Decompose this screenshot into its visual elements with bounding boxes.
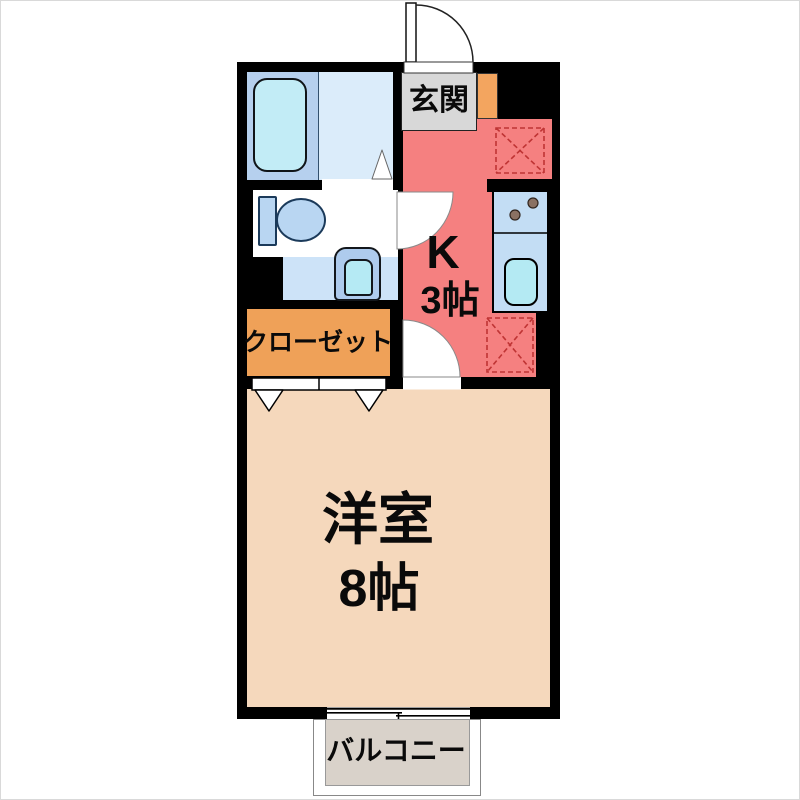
- room-label: 洋室: [322, 492, 434, 548]
- genkan-label: 玄関: [409, 86, 469, 116]
- entrance-door-leaf-icon: [406, 3, 416, 62]
- washing-machine-pan-inner: [344, 259, 373, 296]
- balcony-label: バルコニー: [326, 737, 465, 765]
- room-size-label: 8帖: [339, 563, 420, 615]
- wall-segment: [549, 190, 552, 313]
- entrance-door-arc-icon: [416, 5, 473, 62]
- sliding-window-icon: [327, 707, 470, 719]
- kitchen-label: K: [426, 229, 459, 275]
- kitchen-sink-icon: [504, 258, 538, 306]
- toilet-bowl-icon: [276, 198, 326, 242]
- floor-plan: 玄関 K 3帖 クローゼット 洋室 8帖 バルコニー: [0, 0, 800, 800]
- shoe-cabinet: [477, 73, 498, 119]
- bathtub-icon: [253, 78, 307, 172]
- closet-label: クローゼット: [243, 331, 393, 356]
- kitchen-size-label: 3帖: [420, 282, 479, 320]
- toilet-tank-icon: [258, 196, 277, 246]
- bathroom-floor: [318, 72, 393, 180]
- wall-segment: [536, 313, 552, 377]
